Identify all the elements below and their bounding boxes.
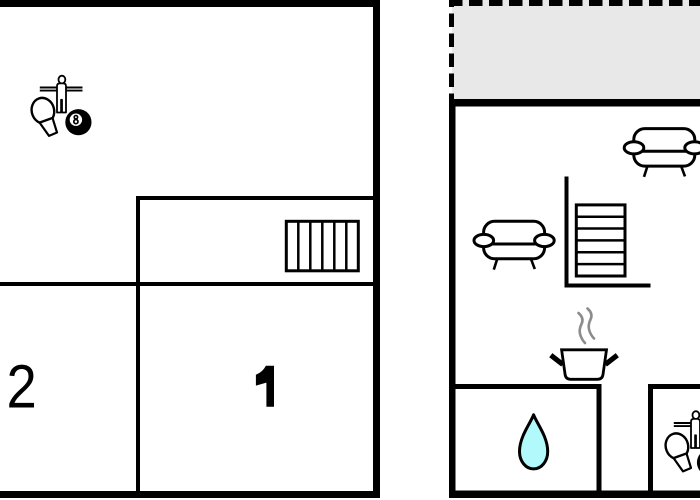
svg-text:2: 2 — [6, 353, 36, 422]
